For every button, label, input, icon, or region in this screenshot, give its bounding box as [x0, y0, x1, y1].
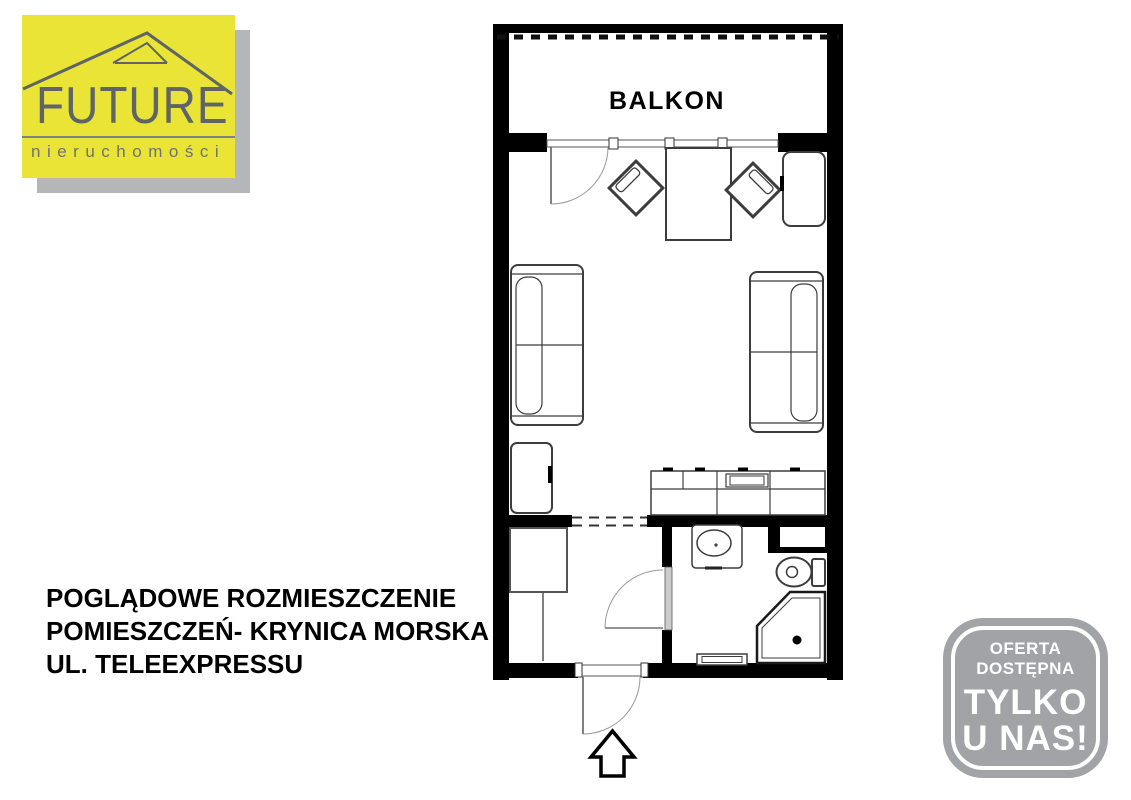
logo-brand-text: FUTURE — [36, 75, 235, 135]
bath-mat — [697, 654, 747, 665]
hall-opening — [572, 518, 647, 526]
plan-caption: POGLĄDOWE ROZMIESZCZENIE POMIESZCZEŃ- KR… — [46, 582, 489, 681]
logo-box: FUTURE nieruchomości — [22, 15, 235, 178]
caption-line-1: POGLĄDOWE ROZMIESZCZENIE — [46, 582, 489, 615]
caption-line-2: POMIESZCZEŃ- KRYNICA MORSKA — [46, 615, 489, 648]
logo-tagline-text: nieruchomości — [31, 142, 225, 162]
sink-vanity — [692, 525, 742, 568]
chair-left — [609, 161, 663, 215]
badge-line-1: OFERTA DOSTĘPNA — [955, 639, 1096, 679]
balcony-room-label: BALKON — [609, 87, 725, 115]
sofa-right — [750, 272, 823, 432]
floor-plan: BALKON — [480, 10, 860, 800]
cabinet-low-left — [511, 443, 552, 513]
chair-right — [726, 163, 780, 217]
badge-line-2: TYLKO — [964, 685, 1088, 721]
balcony-door — [551, 147, 608, 204]
badge-line-3: U NAS! — [962, 721, 1089, 757]
page: FUTURE nieruchomości POGLĄDOWE ROZMIESZC… — [0, 0, 1131, 800]
sofa-left — [511, 265, 583, 425]
badge-inner-frame: OFERTA DOSTĘPNA TYLKO U NAS! — [951, 626, 1100, 770]
agency-logo: FUTURE nieruchomości — [22, 15, 250, 193]
dining-table — [666, 148, 731, 240]
duct-shaft — [780, 527, 825, 547]
hall-wardrobe — [510, 528, 567, 661]
exclusive-offer-badge: OFERTA DOSTĘPNA TYLKO U NAS! — [943, 618, 1108, 778]
logo-divider — [22, 136, 235, 138]
balcony-window — [547, 138, 778, 149]
bathroom-door — [605, 567, 672, 630]
entrance-arrow-icon — [591, 731, 634, 776]
caption-line-3: UL. TELEEXPRESSU — [46, 648, 489, 681]
toilet — [777, 558, 826, 587]
corner-shower — [757, 592, 825, 663]
entrance-door — [575, 663, 648, 734]
kitchen-counter — [651, 468, 825, 516]
cabinet-right — [780, 152, 825, 226]
